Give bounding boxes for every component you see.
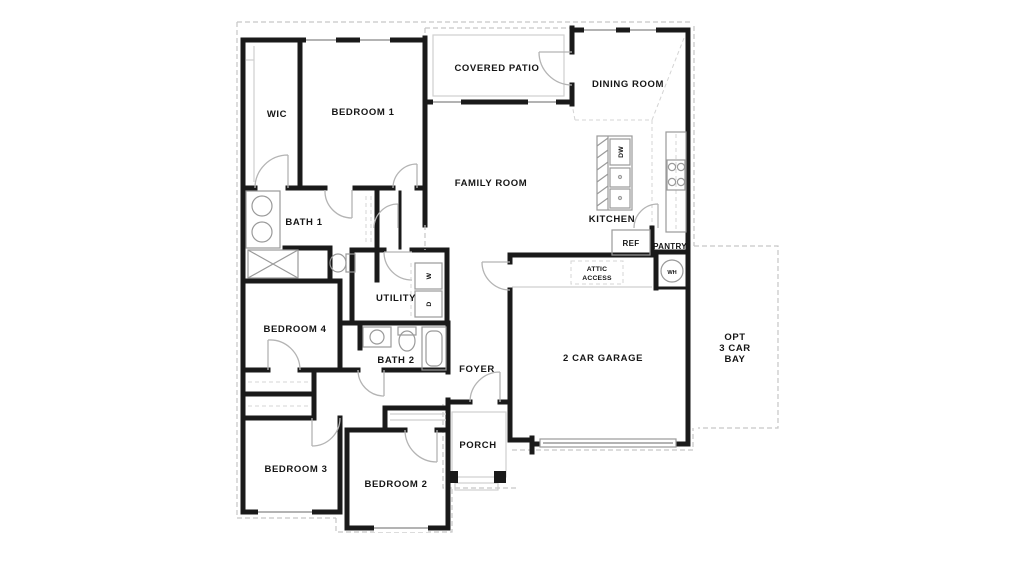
label-dw: DW [618, 146, 625, 158]
label-wh: WH [667, 270, 676, 276]
label-opt-line2: 3 CAR [719, 343, 751, 354]
island-sink2 [610, 189, 630, 208]
bath2-toilet [399, 331, 415, 351]
porch-step [455, 483, 498, 490]
label-bath2: BATH 2 [377, 355, 414, 366]
bath2-door [358, 370, 384, 396]
label-attic-line1: ATTIC [587, 266, 608, 273]
bedroom4-door [268, 340, 300, 370]
kitchen-island [597, 136, 632, 210]
label-pantry: PANTRY [653, 242, 687, 251]
linen-shelves [366, 196, 371, 244]
label-bedroom3: BEDROOM 3 [265, 464, 328, 475]
label-bedroom1: BEDROOM 1 [332, 107, 395, 118]
label-bedroom4: BEDROOM 4 [264, 324, 327, 335]
label-foyer: FOYER [459, 364, 495, 375]
label-bedroom2: BEDROOM 2 [365, 479, 428, 490]
porch-post-left [446, 471, 458, 483]
label-utility: UTILITY [376, 293, 416, 304]
label-covered-patio: COVERED PATIO [454, 63, 539, 74]
bath1-door [325, 190, 352, 218]
pantry-door [634, 204, 658, 228]
bath1-vanity [246, 191, 280, 248]
labels: WIC BEDROOM 1 COVERED PATIO DINING ROOM … [264, 63, 751, 490]
label-opt-line3: BAY [725, 354, 746, 365]
label-bath1: BATH 1 [285, 217, 322, 228]
bath1-sink2 [252, 222, 272, 242]
bedroom2-closet-shelves [390, 414, 446, 420]
floor-plan-svg: WIC BEDROOM 1 COVERED PATIO DINING ROOM … [0, 0, 1024, 576]
property-outline [237, 22, 778, 532]
bath1-sink1 [252, 196, 272, 216]
label-porch: PORCH [459, 440, 496, 451]
label-wic: WIC [267, 109, 287, 120]
wic-door [255, 155, 288, 188]
floor-plan-page: WIC BEDROOM 1 COVERED PATIO DINING ROOM … [0, 0, 1024, 576]
label-kitchen: KITCHEN [589, 214, 635, 225]
label-attic-line2: ACCESS [582, 275, 612, 282]
label-dryer: D [426, 301, 433, 306]
garage-entry-door [482, 262, 510, 290]
island-sink1 [610, 168, 630, 187]
label-garage: 2 CAR GARAGE [563, 353, 643, 364]
label-ref: REF [623, 239, 640, 248]
front-door [470, 372, 500, 402]
label-opt-line1: OPT [724, 332, 745, 343]
bath2-tub-inner [426, 331, 442, 366]
utility-door [384, 252, 412, 280]
bedroom3-door [312, 418, 340, 446]
label-washer: W [426, 272, 433, 279]
label-dining-room: DINING ROOM [592, 79, 664, 90]
bedroom1-door [393, 164, 417, 188]
bedroom2-door [405, 430, 437, 462]
patio-door [539, 52, 572, 85]
label-family-room: FAMILY ROOM [455, 178, 528, 189]
walls [243, 28, 688, 528]
bath2-sink [370, 330, 384, 344]
porch-post-right [494, 471, 506, 483]
